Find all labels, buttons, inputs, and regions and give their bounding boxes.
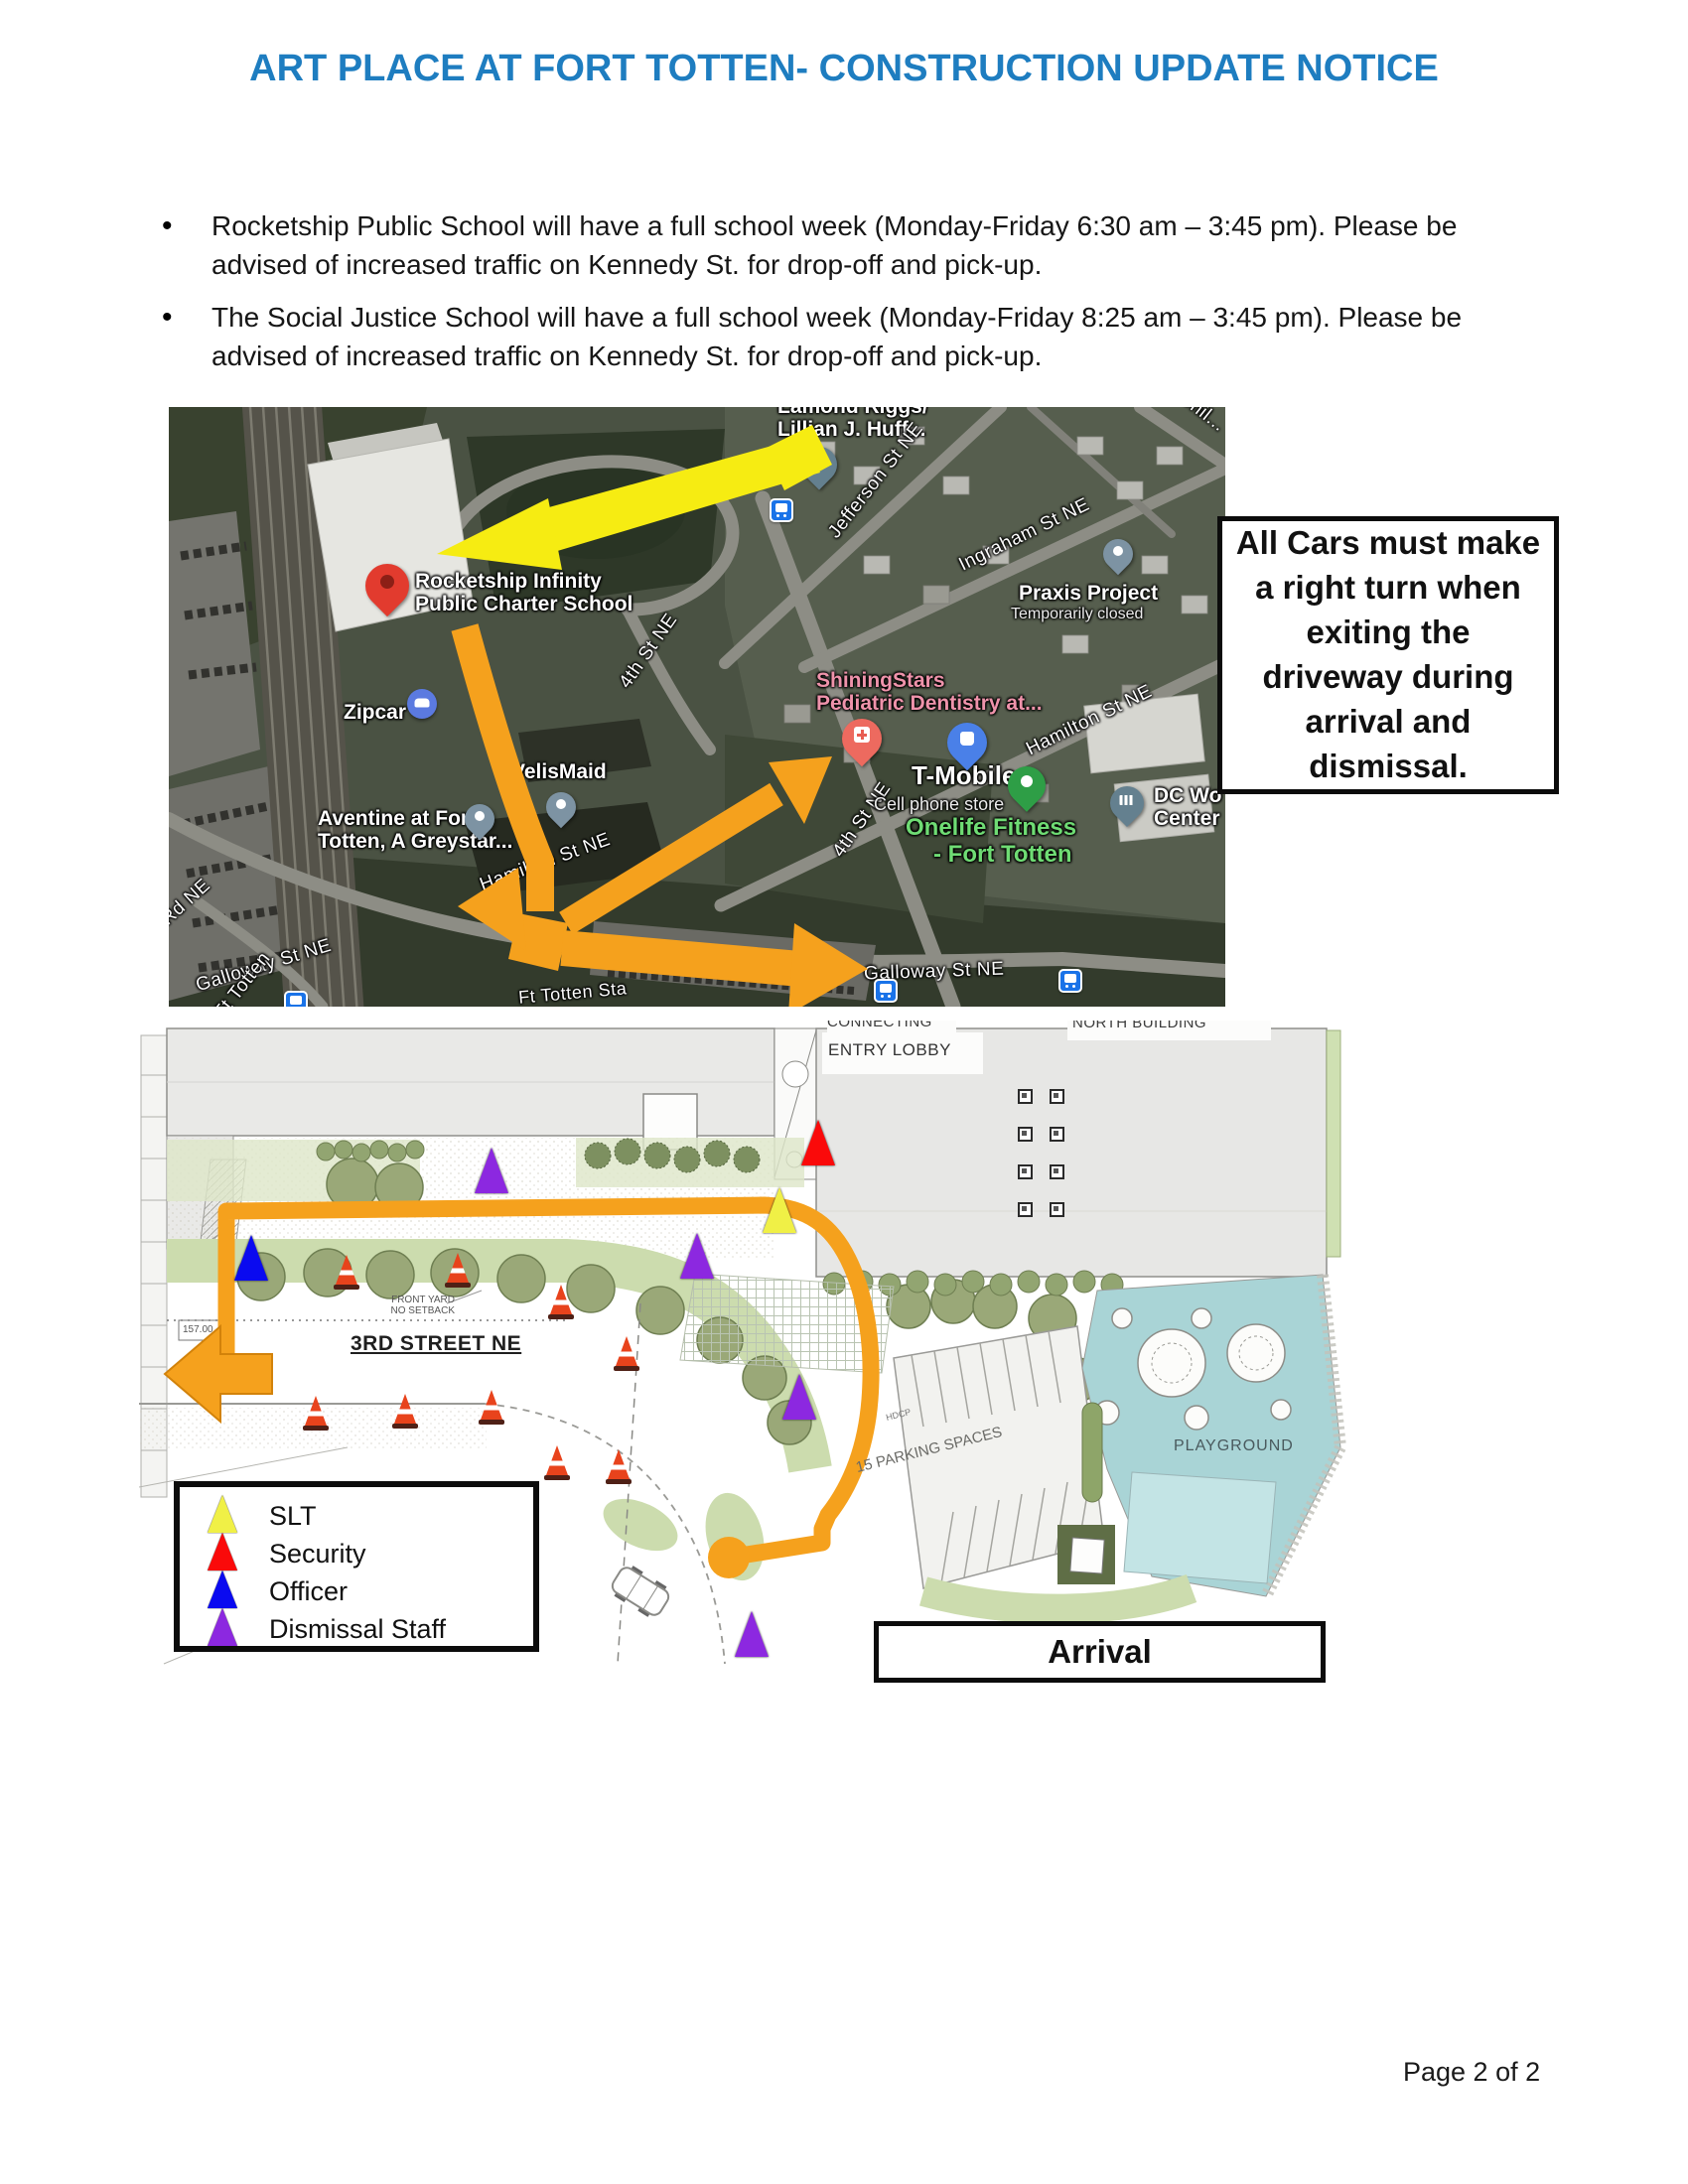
poi-label-rocketship: Rocketship Infinity Public Charter Schoo… xyxy=(415,570,633,615)
dentistry-pin-icon xyxy=(842,719,882,758)
security-triangle-marker xyxy=(801,1120,835,1165)
slt-triangle-marker xyxy=(763,1187,796,1233)
street-label-rd-ne: Rd NE xyxy=(169,875,215,930)
legend-item-slt: SLT xyxy=(208,1497,533,1535)
label-3rd-street: 3RD STREET NE xyxy=(351,1332,521,1356)
page-number: Page 2 of 2 xyxy=(1403,2057,1562,2088)
label-entry-lobby: ENTRY LOBBY xyxy=(828,1040,951,1060)
poi-sublabel-tmobile: Cell phone store xyxy=(874,794,1004,815)
poi-label-shiningstars: ShiningStars Pediatric Dentistry at... xyxy=(816,669,1043,715)
bullet-item: Rocketship Public School will have a ful… xyxy=(162,206,1527,284)
street-label-4th-st-2: 4th St NE xyxy=(828,778,896,862)
bike-share-icon xyxy=(284,991,308,1007)
legend-item-dismissal-staff: Dismissal Staff xyxy=(208,1610,533,1648)
poi-label-zipcar: Zipcar xyxy=(344,701,406,724)
traffic-cone-icon xyxy=(548,1285,574,1319)
legend-item-security: Security xyxy=(208,1535,533,1572)
tmobile-pin-icon xyxy=(947,723,987,762)
label-north-building-clipped: NORTH BUILDING xyxy=(1072,1021,1241,1032)
traffic-cone-icon xyxy=(334,1255,359,1290)
bullet-item: The Social Justice School will have a fu… xyxy=(162,298,1527,375)
label-front-yard: FRONT YARD NO SETBACK xyxy=(385,1295,455,1316)
traffic-cone-icon xyxy=(614,1336,639,1371)
traffic-cone-icon xyxy=(392,1394,418,1429)
label-connecting-clipped: CONNECTING xyxy=(827,1021,956,1033)
dismissal-staff-triangle-marker xyxy=(475,1148,508,1193)
traffic-cone-icon xyxy=(479,1390,504,1425)
street-label-ft-totten-sta: Ft Totten Sta xyxy=(517,978,628,1007)
bus-stop-icon xyxy=(874,979,898,1003)
poi-label-dc-center: DC Wo Center xyxy=(1154,784,1221,830)
security-triangle-icon xyxy=(208,1533,237,1570)
rocketship-school-pin-icon xyxy=(365,564,409,608)
poi-status-praxis: Temporarily closed xyxy=(1011,606,1143,623)
praxis-pin-icon xyxy=(1103,539,1133,569)
dismissal-staff-triangle-marker xyxy=(680,1233,714,1279)
street-label-ingraham: Ingraham St NE xyxy=(955,494,1093,577)
document-page: ART PLACE AT FORT TOTTEN- CONSTRUCTION U… xyxy=(0,0,1688,2184)
label-elevation: 157.00 xyxy=(183,1324,213,1335)
map-legend: SLT Security Officer Dismissal Staff xyxy=(174,1481,539,1652)
bus-stop-icon xyxy=(1058,969,1082,993)
poi-label-velismaid: VelisMaid xyxy=(511,760,607,783)
poi-label-praxis: Praxis Project xyxy=(1019,582,1158,605)
traffic-cone-icon xyxy=(544,1445,570,1480)
legend-item-officer: Officer xyxy=(208,1572,533,1610)
aventine-pin-icon xyxy=(465,804,494,834)
arrival-label-box: Arrival xyxy=(874,1621,1326,1683)
dismissal-staff-triangle-icon xyxy=(208,1608,237,1646)
slt-triangle-icon xyxy=(208,1495,237,1533)
street-label-chillum: Chil... xyxy=(1175,407,1225,437)
right-turn-callout: All Cars must make a right turn when exi… xyxy=(1217,516,1559,794)
poi-label-onelife: Onelife Fitness - Fort Totten xyxy=(906,814,1076,868)
velismaid-pin-icon xyxy=(546,792,576,822)
traffic-cone-icon xyxy=(445,1253,471,1288)
street-label-hamilton: Hamilton St NE xyxy=(1023,681,1156,760)
library-pin-icon xyxy=(801,447,837,482)
label-playground: PLAYGROUND xyxy=(1174,1437,1294,1455)
officer-triangle-marker xyxy=(234,1235,268,1281)
bus-stop-icon xyxy=(770,498,793,522)
satellite-map: Lamond Riggs/ Lillian J. Huff... Chil...… xyxy=(169,407,1225,1007)
onelife-pin-icon xyxy=(1008,766,1046,804)
dismissal-staff-triangle-marker xyxy=(782,1374,816,1420)
zipcar-pin-icon xyxy=(407,689,437,719)
street-label-4th-st-1: 4th St NE xyxy=(615,610,682,693)
dc-museum-pin-icon xyxy=(1110,786,1144,820)
officer-triangle-icon xyxy=(208,1570,237,1608)
page-title: ART PLACE AT FORT TOTTEN- CONSTRUCTION U… xyxy=(0,48,1688,90)
notice-bullets: Rocketship Public School will have a ful… xyxy=(162,206,1527,389)
traffic-cone-icon xyxy=(303,1396,329,1431)
dismissal-staff-triangle-marker xyxy=(735,1611,769,1657)
traffic-cone-icon xyxy=(606,1449,632,1484)
